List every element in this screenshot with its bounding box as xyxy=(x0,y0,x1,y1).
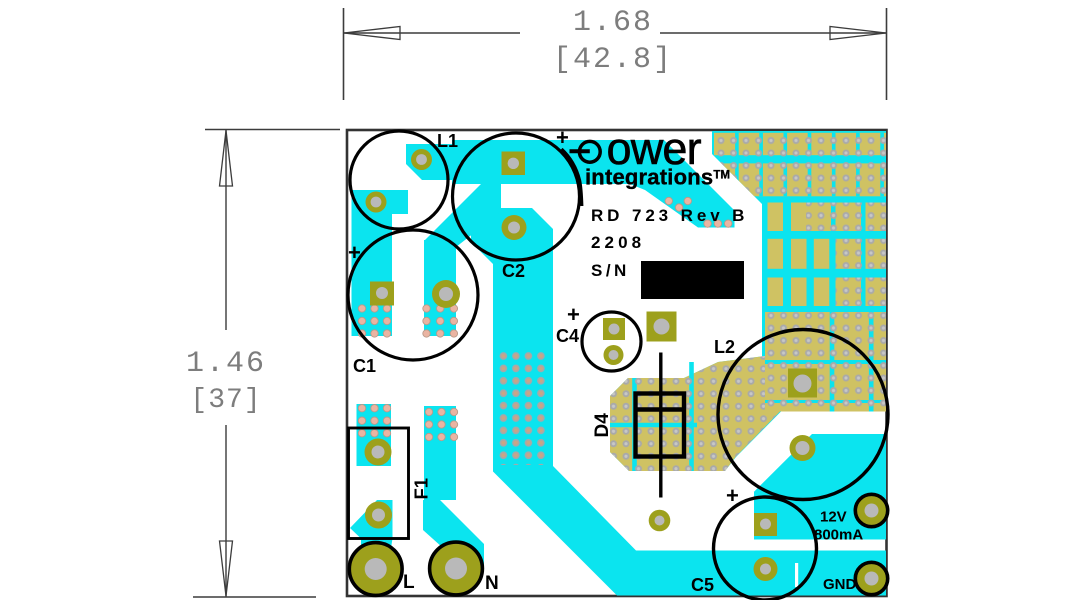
svg-text:2208: 2208 xyxy=(591,233,645,252)
svg-text:L1: L1 xyxy=(437,131,458,151)
svg-text:GND: GND xyxy=(823,576,857,593)
svg-text:F1: F1 xyxy=(411,478,432,500)
svg-text:1.46: 1.46 xyxy=(186,347,266,381)
svg-text:12V: 12V xyxy=(820,509,847,526)
svg-text:800mA: 800mA xyxy=(814,527,863,544)
svg-text:C4: C4 xyxy=(556,326,579,346)
svg-text:+: + xyxy=(556,125,569,150)
svg-text:+: + xyxy=(348,240,361,265)
svg-text:L: L xyxy=(403,572,415,593)
svg-text:L2: L2 xyxy=(714,337,735,357)
svg-text:1.68: 1.68 xyxy=(573,6,653,40)
svg-text:[37]: [37] xyxy=(190,385,261,416)
svg-text:C2: C2 xyxy=(502,261,525,281)
svg-text:C5: C5 xyxy=(691,575,714,595)
svg-text:N: N xyxy=(485,573,499,594)
svg-text:[42.8]: [42.8] xyxy=(553,43,673,77)
svg-text:+: + xyxy=(726,483,739,508)
svg-text:+: + xyxy=(567,302,580,327)
svg-text:D4: D4 xyxy=(592,413,613,438)
svg-text:C1: C1 xyxy=(353,356,376,376)
svg-text:integrationsTM: integrationsTM xyxy=(585,165,730,190)
svg-text:RD 723 Rev B: RD 723 Rev B xyxy=(591,206,748,225)
svg-text:S/N: S/N xyxy=(591,261,630,280)
